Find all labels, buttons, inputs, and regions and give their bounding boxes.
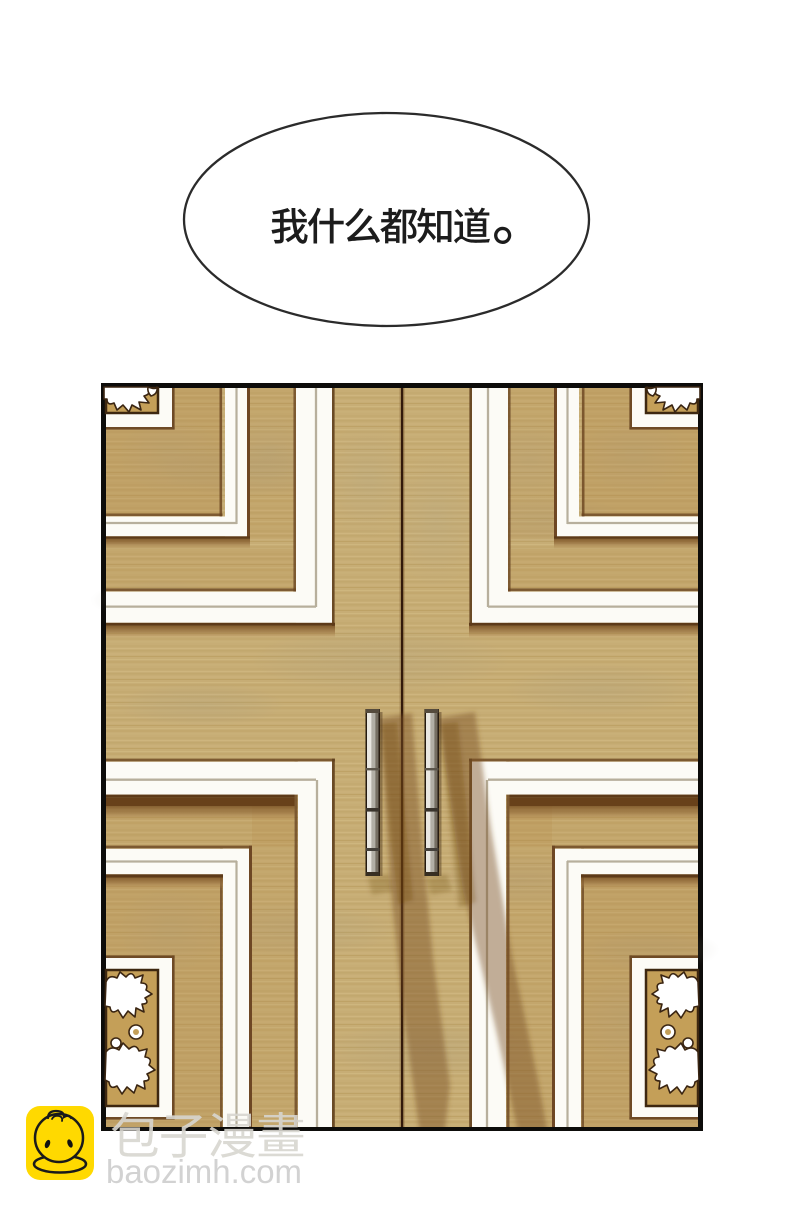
svg-text:baozimh.com: baozimh.com [106, 1153, 302, 1190]
